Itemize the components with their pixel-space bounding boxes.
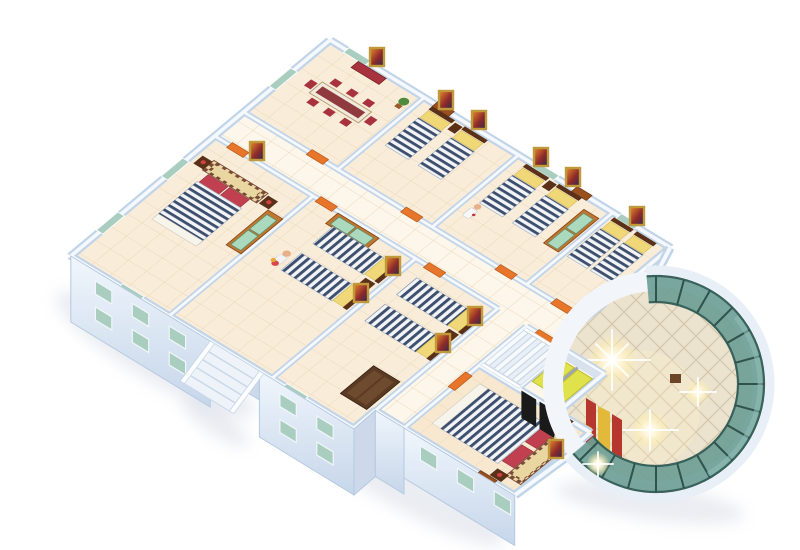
painting [250, 142, 264, 160]
painting [566, 168, 580, 186]
floor-plan-svg [0, 0, 800, 550]
planter-box [670, 374, 681, 383]
painting [370, 48, 384, 66]
painting [630, 207, 644, 225]
painting [468, 307, 482, 325]
painting [472, 111, 486, 129]
painting [386, 257, 400, 275]
painting [354, 284, 368, 302]
painting [436, 334, 450, 352]
painting [549, 440, 563, 458]
floor-plan-3d-render [0, 0, 800, 550]
painting [439, 91, 453, 109]
painting [534, 148, 548, 166]
counter-red [612, 414, 622, 458]
